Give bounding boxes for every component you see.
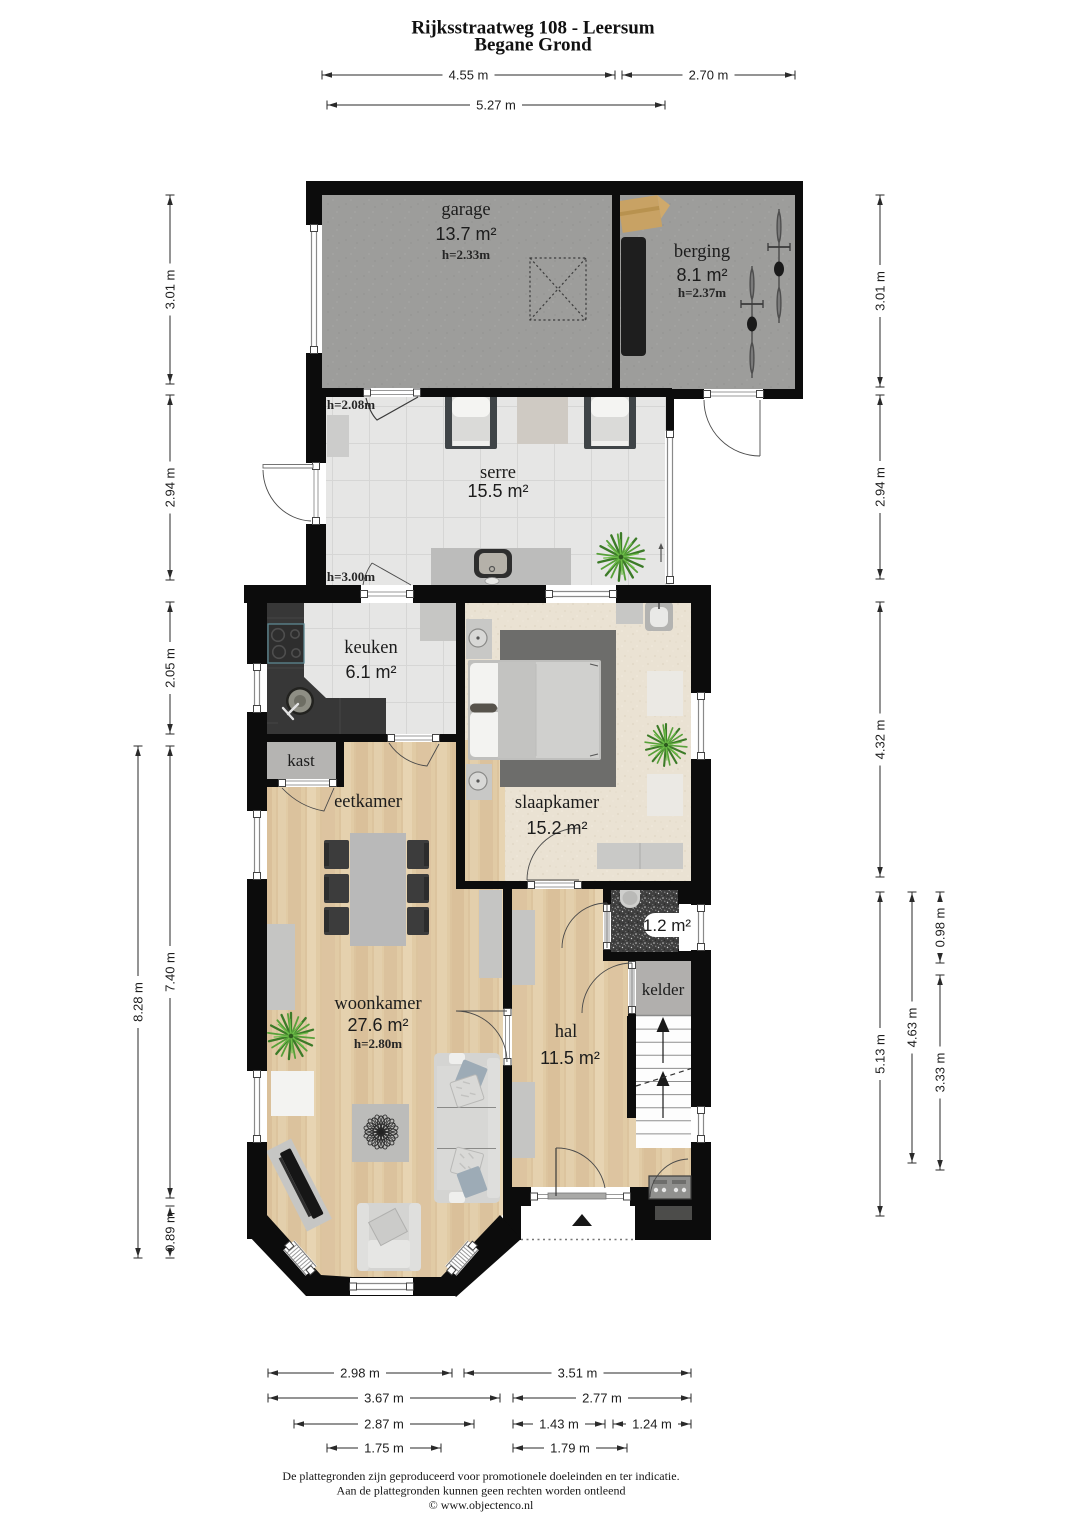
- svg-text:hal: hal: [555, 1022, 578, 1042]
- svg-text:2.77 m: 2.77 m: [582, 1391, 622, 1406]
- svg-text:2.05 m: 2.05 m: [163, 648, 178, 688]
- svg-text:keuken: keuken: [344, 638, 397, 658]
- svg-text:4.32 m: 4.32 m: [873, 720, 888, 760]
- svg-text:7.40 m: 7.40 m: [163, 952, 178, 992]
- svg-text:6.1 m²: 6.1 m²: [345, 662, 396, 682]
- svg-text:2.94 m: 2.94 m: [873, 467, 888, 507]
- svg-text:2.70 m: 2.70 m: [689, 68, 729, 83]
- svg-text:2.94 m: 2.94 m: [163, 468, 178, 508]
- svg-text:h=2.80m: h=2.80m: [354, 1036, 402, 1051]
- svg-text:h=2.08m: h=2.08m: [327, 397, 375, 412]
- svg-text:h=2.37m: h=2.37m: [678, 285, 726, 300]
- svg-text:3.51 m: 3.51 m: [558, 1366, 598, 1381]
- svg-text:© www.objectenco.nl: © www.objectenco.nl: [429, 1498, 534, 1512]
- svg-text:15.2 m²: 15.2 m²: [526, 818, 587, 838]
- svg-text:0.89 m: 0.89 m: [163, 1212, 178, 1252]
- svg-text:serre: serre: [480, 463, 516, 483]
- svg-text:Begane Grond: Begane Grond: [474, 35, 592, 56]
- svg-text:8.28 m: 8.28 m: [131, 982, 146, 1022]
- svg-text:kelder: kelder: [642, 980, 685, 999]
- svg-text:3.01 m: 3.01 m: [163, 270, 178, 310]
- svg-text:13.7 m²: 13.7 m²: [435, 224, 496, 244]
- svg-text:1.2 m²: 1.2 m²: [643, 916, 692, 935]
- svg-text:Aan de plattegronden kunnen ge: Aan de plattegronden kunnen geen rechten…: [337, 1484, 626, 1498]
- svg-text:kast: kast: [287, 751, 315, 770]
- svg-text:3.01 m: 3.01 m: [873, 271, 888, 311]
- svg-text:garage: garage: [441, 200, 490, 220]
- svg-text:15.5 m²: 15.5 m²: [467, 481, 528, 501]
- svg-text:h=3.00m: h=3.00m: [327, 569, 375, 584]
- svg-text:27.6 m²: 27.6 m²: [347, 1015, 408, 1035]
- svg-text:eetkamer: eetkamer: [334, 792, 402, 812]
- svg-text:slaapkamer: slaapkamer: [515, 793, 599, 813]
- svg-text:5.27 m: 5.27 m: [476, 98, 516, 113]
- svg-text:3.67 m: 3.67 m: [364, 1391, 404, 1406]
- svg-text:4.63 m: 4.63 m: [905, 1008, 920, 1048]
- svg-text:2.87 m: 2.87 m: [364, 1417, 404, 1432]
- svg-text:1.75 m: 1.75 m: [364, 1441, 404, 1456]
- svg-text:2.98 m: 2.98 m: [340, 1366, 380, 1381]
- svg-text:1.43 m: 1.43 m: [539, 1417, 579, 1432]
- svg-text:8.1 m²: 8.1 m²: [676, 265, 727, 285]
- svg-text:1.24 m: 1.24 m: [632, 1417, 672, 1432]
- svg-text:4.55 m: 4.55 m: [449, 68, 489, 83]
- svg-text:11.5 m²: 11.5 m²: [540, 1048, 600, 1068]
- svg-text:h=2.33m: h=2.33m: [442, 247, 490, 262]
- svg-text:woonkamer: woonkamer: [334, 994, 421, 1014]
- svg-text:5.13 m: 5.13 m: [873, 1034, 888, 1074]
- svg-text:0.98 m: 0.98 m: [933, 908, 948, 948]
- svg-text:De plattegronden zijn geproduc: De plattegronden zijn geproduceerd voor …: [282, 1469, 679, 1483]
- svg-text:berging: berging: [674, 242, 730, 262]
- svg-text:3.33 m: 3.33 m: [933, 1053, 948, 1093]
- svg-text:1.79 m: 1.79 m: [550, 1441, 590, 1456]
